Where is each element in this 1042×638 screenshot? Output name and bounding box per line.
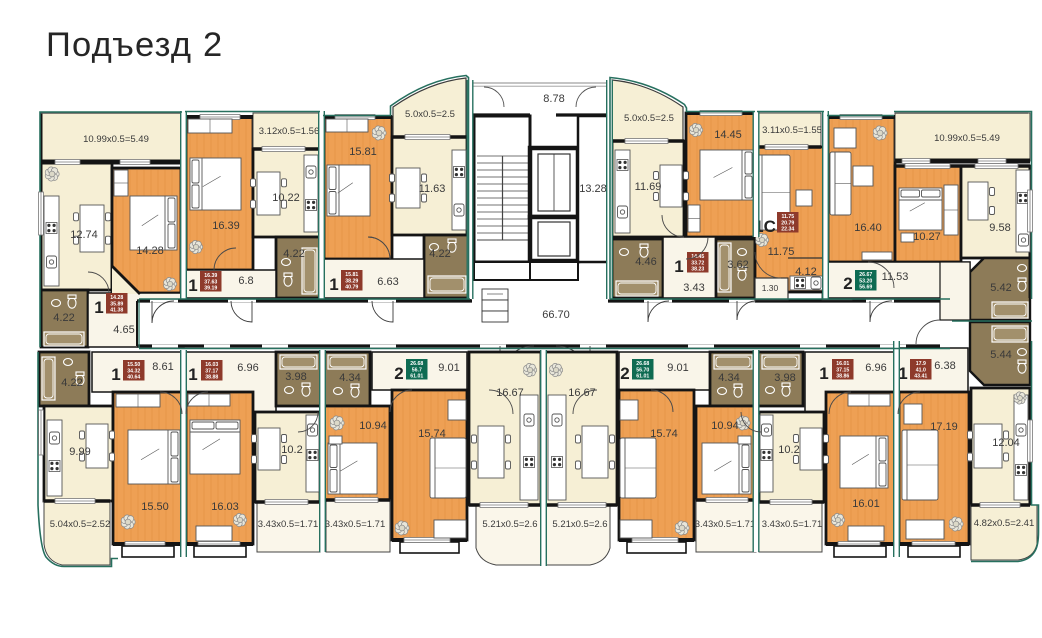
svg-text:16.39: 16.39	[204, 273, 217, 279]
svg-text:4.22: 4.22	[429, 248, 450, 260]
svg-text:3.98: 3.98	[774, 372, 795, 384]
svg-text:1: 1	[674, 257, 683, 276]
svg-text:11.75: 11.75	[781, 214, 794, 220]
svg-text:12.04: 12.04	[992, 437, 1020, 449]
svg-text:9.58: 9.58	[989, 222, 1010, 234]
svg-text:3.12x0.5=1.56: 3.12x0.5=1.56	[259, 126, 319, 137]
svg-text:3.43x0.5=1.71: 3.43x0.5=1.71	[695, 519, 755, 530]
svg-text:11.69: 11.69	[635, 181, 662, 193]
svg-text:2: 2	[620, 364, 629, 383]
svg-text:3.11x0.5=1.55: 3.11x0.5=1.55	[762, 125, 822, 136]
svg-text:4.22: 4.22	[283, 248, 304, 260]
svg-text:Подъезд 2: Подъезд 2	[46, 26, 223, 64]
svg-text:41.0: 41.0	[916, 367, 926, 373]
svg-text:16.03: 16.03	[211, 501, 239, 513]
svg-text:5.21x0.5=2.6: 5.21x0.5=2.6	[482, 519, 537, 530]
svg-text:40.79: 40.79	[345, 285, 358, 291]
svg-text:14.45: 14.45	[714, 129, 742, 141]
svg-text:17.19: 17.19	[930, 421, 958, 433]
svg-text:17.9: 17.9	[916, 361, 926, 367]
svg-text:10.94: 10.94	[711, 420, 739, 432]
svg-text:10.99x0.5=5.49: 10.99x0.5=5.49	[83, 134, 149, 145]
svg-text:8.61: 8.61	[152, 361, 173, 373]
svg-text:6.8: 6.8	[238, 275, 253, 287]
svg-text:3.62: 3.62	[727, 259, 748, 271]
svg-text:12.74: 12.74	[70, 229, 98, 241]
svg-text:37.63: 37.63	[204, 279, 217, 285]
svg-text:1: 1	[188, 365, 197, 384]
svg-text:1: 1	[111, 365, 120, 384]
svg-text:37.15: 37.15	[836, 367, 849, 373]
svg-text:33.72: 33.72	[691, 260, 704, 266]
svg-text:15.74: 15.74	[418, 428, 446, 440]
svg-text:4.34: 4.34	[718, 372, 739, 384]
svg-text:56.70: 56.70	[636, 367, 649, 373]
svg-text:4.82x0.5=2.41: 4.82x0.5=2.41	[974, 518, 1034, 529]
svg-text:26.67: 26.67	[859, 272, 872, 278]
svg-text:56.7: 56.7	[412, 367, 422, 373]
svg-text:5.0x0.5=2.5: 5.0x0.5=2.5	[624, 113, 674, 124]
svg-text:37.17: 37.17	[205, 368, 218, 374]
svg-text:34.32: 34.32	[127, 368, 140, 374]
svg-text:38.88: 38.88	[205, 375, 218, 381]
svg-text:53.20: 53.20	[859, 278, 872, 284]
svg-text:10.2: 10.2	[778, 444, 799, 456]
svg-text:10.2: 10.2	[281, 444, 302, 456]
svg-text:9.01: 9.01	[438, 362, 459, 374]
svg-text:13.28: 13.28	[579, 183, 607, 195]
svg-text:38.29: 38.29	[345, 278, 358, 284]
svg-text:11.75: 11.75	[768, 246, 795, 258]
svg-text:20.79: 20.79	[781, 220, 794, 226]
svg-text:1: 1	[188, 276, 197, 295]
svg-text:16.01: 16.01	[836, 361, 849, 367]
svg-text:2: 2	[394, 364, 403, 383]
svg-text:9.99: 9.99	[69, 446, 90, 458]
svg-text:2: 2	[843, 274, 852, 293]
svg-text:26.68: 26.68	[410, 361, 423, 367]
svg-text:6.96: 6.96	[237, 362, 258, 374]
svg-text:4.12: 4.12	[795, 266, 816, 278]
svg-text:39.19: 39.19	[204, 286, 217, 292]
svg-text:6.63: 6.63	[377, 276, 398, 288]
svg-text:4.34: 4.34	[339, 372, 360, 384]
svg-text:3.98: 3.98	[285, 371, 306, 383]
svg-text:15.81: 15.81	[349, 146, 377, 158]
svg-text:56.69: 56.69	[859, 285, 872, 291]
svg-text:8.78: 8.78	[543, 93, 564, 105]
svg-text:61.01: 61.01	[410, 374, 423, 380]
svg-text:5.44: 5.44	[990, 349, 1011, 361]
svg-text:1.30: 1.30	[762, 283, 779, 293]
svg-text:14.28: 14.28	[136, 245, 164, 257]
svg-text:43.41: 43.41	[914, 374, 927, 380]
svg-text:16.67: 16.67	[568, 387, 596, 399]
svg-text:3.43x0.5=1.71: 3.43x0.5=1.71	[762, 519, 822, 530]
svg-text:11.63: 11.63	[419, 183, 446, 195]
svg-text:35.89: 35.89	[110, 301, 123, 307]
svg-text:22.34: 22.34	[781, 227, 794, 233]
svg-text:11.53: 11.53	[882, 271, 909, 283]
svg-text:4.22: 4.22	[61, 377, 82, 389]
svg-text:5.21x0.5=2.6: 5.21x0.5=2.6	[552, 519, 607, 530]
svg-text:61.01: 61.01	[636, 374, 649, 380]
svg-text:16.39: 16.39	[212, 220, 240, 232]
svg-text:66.70: 66.70	[542, 309, 570, 321]
svg-text:16.03: 16.03	[205, 362, 218, 368]
svg-text:16.40: 16.40	[854, 222, 882, 234]
svg-text:4.46: 4.46	[635, 256, 656, 268]
svg-text:10.22: 10.22	[272, 192, 300, 204]
svg-text:1: 1	[94, 298, 103, 317]
svg-text:6.96: 6.96	[865, 362, 886, 374]
svg-text:4.65: 4.65	[113, 324, 134, 336]
svg-text:10.94: 10.94	[359, 420, 387, 432]
svg-text:26.68: 26.68	[636, 361, 649, 367]
svg-text:10.27: 10.27	[913, 231, 941, 243]
svg-text:5.04x0.5=2.52: 5.04x0.5=2.52	[50, 519, 110, 530]
svg-text:5.42: 5.42	[990, 282, 1011, 294]
svg-text:41.38: 41.38	[110, 308, 123, 314]
svg-text:3.43: 3.43	[683, 282, 704, 294]
svg-text:15.50: 15.50	[141, 501, 169, 513]
svg-text:6.38: 6.38	[934, 360, 955, 372]
svg-text:40.64: 40.64	[127, 375, 140, 381]
svg-text:38.86: 38.86	[836, 374, 849, 380]
svg-text:38.23: 38.23	[691, 267, 704, 273]
svg-text:10.99x0.5=5.49: 10.99x0.5=5.49	[934, 133, 1000, 144]
svg-text:15.74: 15.74	[650, 428, 678, 440]
svg-text:5.0x0.5=2.5: 5.0x0.5=2.5	[405, 109, 455, 120]
svg-text:1: 1	[819, 364, 828, 383]
svg-text:14.28: 14.28	[110, 295, 123, 301]
svg-text:15.81: 15.81	[345, 272, 358, 278]
svg-text:4.22: 4.22	[53, 312, 74, 324]
svg-text:16.01: 16.01	[852, 498, 880, 510]
svg-text:15.50: 15.50	[127, 362, 140, 368]
svg-text:1: 1	[329, 275, 338, 294]
svg-text:3.43x0.5=1.71: 3.43x0.5=1.71	[258, 519, 318, 530]
svg-text:9.01: 9.01	[667, 362, 688, 374]
svg-text:3.43x0.5=1.71: 3.43x0.5=1.71	[325, 519, 385, 530]
